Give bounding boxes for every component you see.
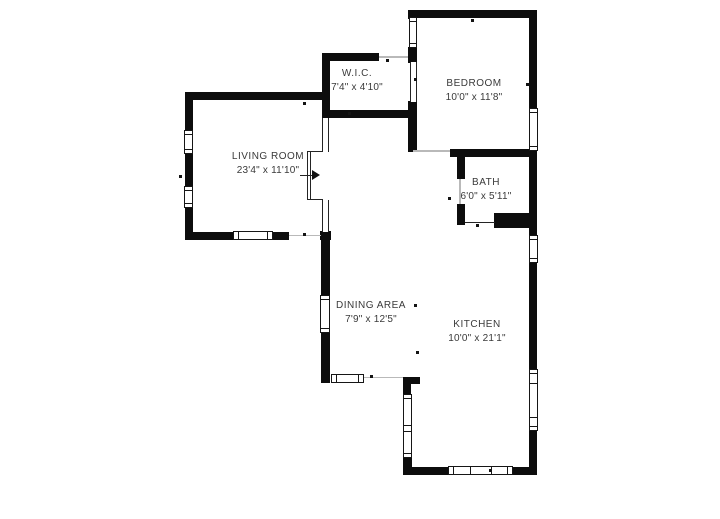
wall-dining-left-a <box>321 240 330 296</box>
wall-wic-top <box>322 53 379 61</box>
wall-kitchen-bottom-a <box>403 467 448 475</box>
wall-bedroom-top <box>408 10 537 18</box>
dimension-tick <box>416 351 419 354</box>
room-dimensions: 7'9" x 12'5" <box>311 313 431 327</box>
window-mullion <box>404 431 411 432</box>
dimension-tick <box>471 19 474 22</box>
dimension-tick <box>370 375 373 378</box>
wall-living-left-a <box>185 92 193 132</box>
wall-bedroom-left-b <box>408 47 417 63</box>
room-dimensions: 6'0" x 5'11" <box>446 190 526 204</box>
wall-living-corner <box>320 231 331 240</box>
wall-right-b <box>529 150 537 236</box>
room-name: BEDROOM <box>414 76 534 91</box>
room-name: DINING AREA <box>311 298 431 313</box>
window-kitchen-right-2 <box>529 369 538 431</box>
window-mullion <box>530 383 537 384</box>
room-name: W.I.C. <box>307 66 407 81</box>
dimension-tick <box>179 175 182 178</box>
window-kitchen-bottom <box>448 466 513 475</box>
dimension-tick <box>303 233 306 236</box>
wall-living-bottom-b <box>272 232 289 240</box>
wall-living-left-b <box>185 153 193 187</box>
room-label-living-room: LIVING ROOM 23'4" x 11'10" <box>198 149 338 178</box>
window-mullion <box>530 417 537 418</box>
room-label-bath: BATH 6'0" x 5'11" <box>446 175 526 204</box>
wall-bath-top <box>450 149 537 157</box>
room-dimensions: 23'4" x 11'10" <box>198 164 338 178</box>
wall-entry-niche-bottom <box>307 199 323 200</box>
window-bedroom-left <box>409 17 417 48</box>
wall-bath-bottom-block <box>494 213 530 228</box>
room-label-bedroom: BEDROOM 10'0" x 11'8" <box>414 76 534 105</box>
window-bedroom-right <box>529 108 538 151</box>
dimension-tick <box>489 469 492 472</box>
dimension-tick <box>348 112 351 115</box>
window-kitchen-left <box>403 394 412 458</box>
wall-wic-bottom <box>322 110 413 118</box>
room-label-kitchen: KITCHEN 10'0" x 21'1" <box>417 317 537 346</box>
room-dimensions: 10'0" x 11'8" <box>414 91 534 105</box>
opening-bedroom-door <box>413 150 450 152</box>
room-dimensions: 7'4" x 4'10" <box>307 81 407 95</box>
wall-bath-bottom-line <box>465 222 495 223</box>
wall-hall-upper <box>322 118 329 152</box>
opening-wic-top <box>379 56 408 58</box>
wall-bedroom-left-c <box>408 101 417 152</box>
wall-living-bottom-a <box>185 232 234 240</box>
wall-hall-lower <box>322 200 329 232</box>
dimension-tick <box>476 224 479 227</box>
window-dining-bottom <box>331 374 364 383</box>
room-label-wic: W.I.C. 7'4" x 4'10" <box>307 66 407 95</box>
dimension-tick <box>303 102 306 105</box>
window-mullion <box>404 425 411 426</box>
window-living-bottom <box>233 231 273 240</box>
window-living-left-1 <box>184 130 193 154</box>
window-living-left-2 <box>184 186 193 208</box>
window-mullion <box>470 467 471 474</box>
room-label-dining-area: DINING AREA 7'9" x 12'5" <box>311 298 431 327</box>
dimension-tick <box>386 59 389 62</box>
wall-bath-left-b <box>457 204 465 225</box>
room-name: KITCHEN <box>417 317 537 332</box>
room-dimensions: 10'0" x 21'1" <box>417 332 537 346</box>
wall-kitchen-bottom-b <box>513 467 537 475</box>
room-name: LIVING ROOM <box>198 149 338 164</box>
room-name: BATH <box>446 175 526 190</box>
window-kitchen-right-1 <box>529 235 538 263</box>
floor-plan: W.I.C. 7'4" x 4'10" BEDROOM 10'0" x 11'8… <box>0 0 720 519</box>
wall-dining-left-b <box>321 333 330 383</box>
